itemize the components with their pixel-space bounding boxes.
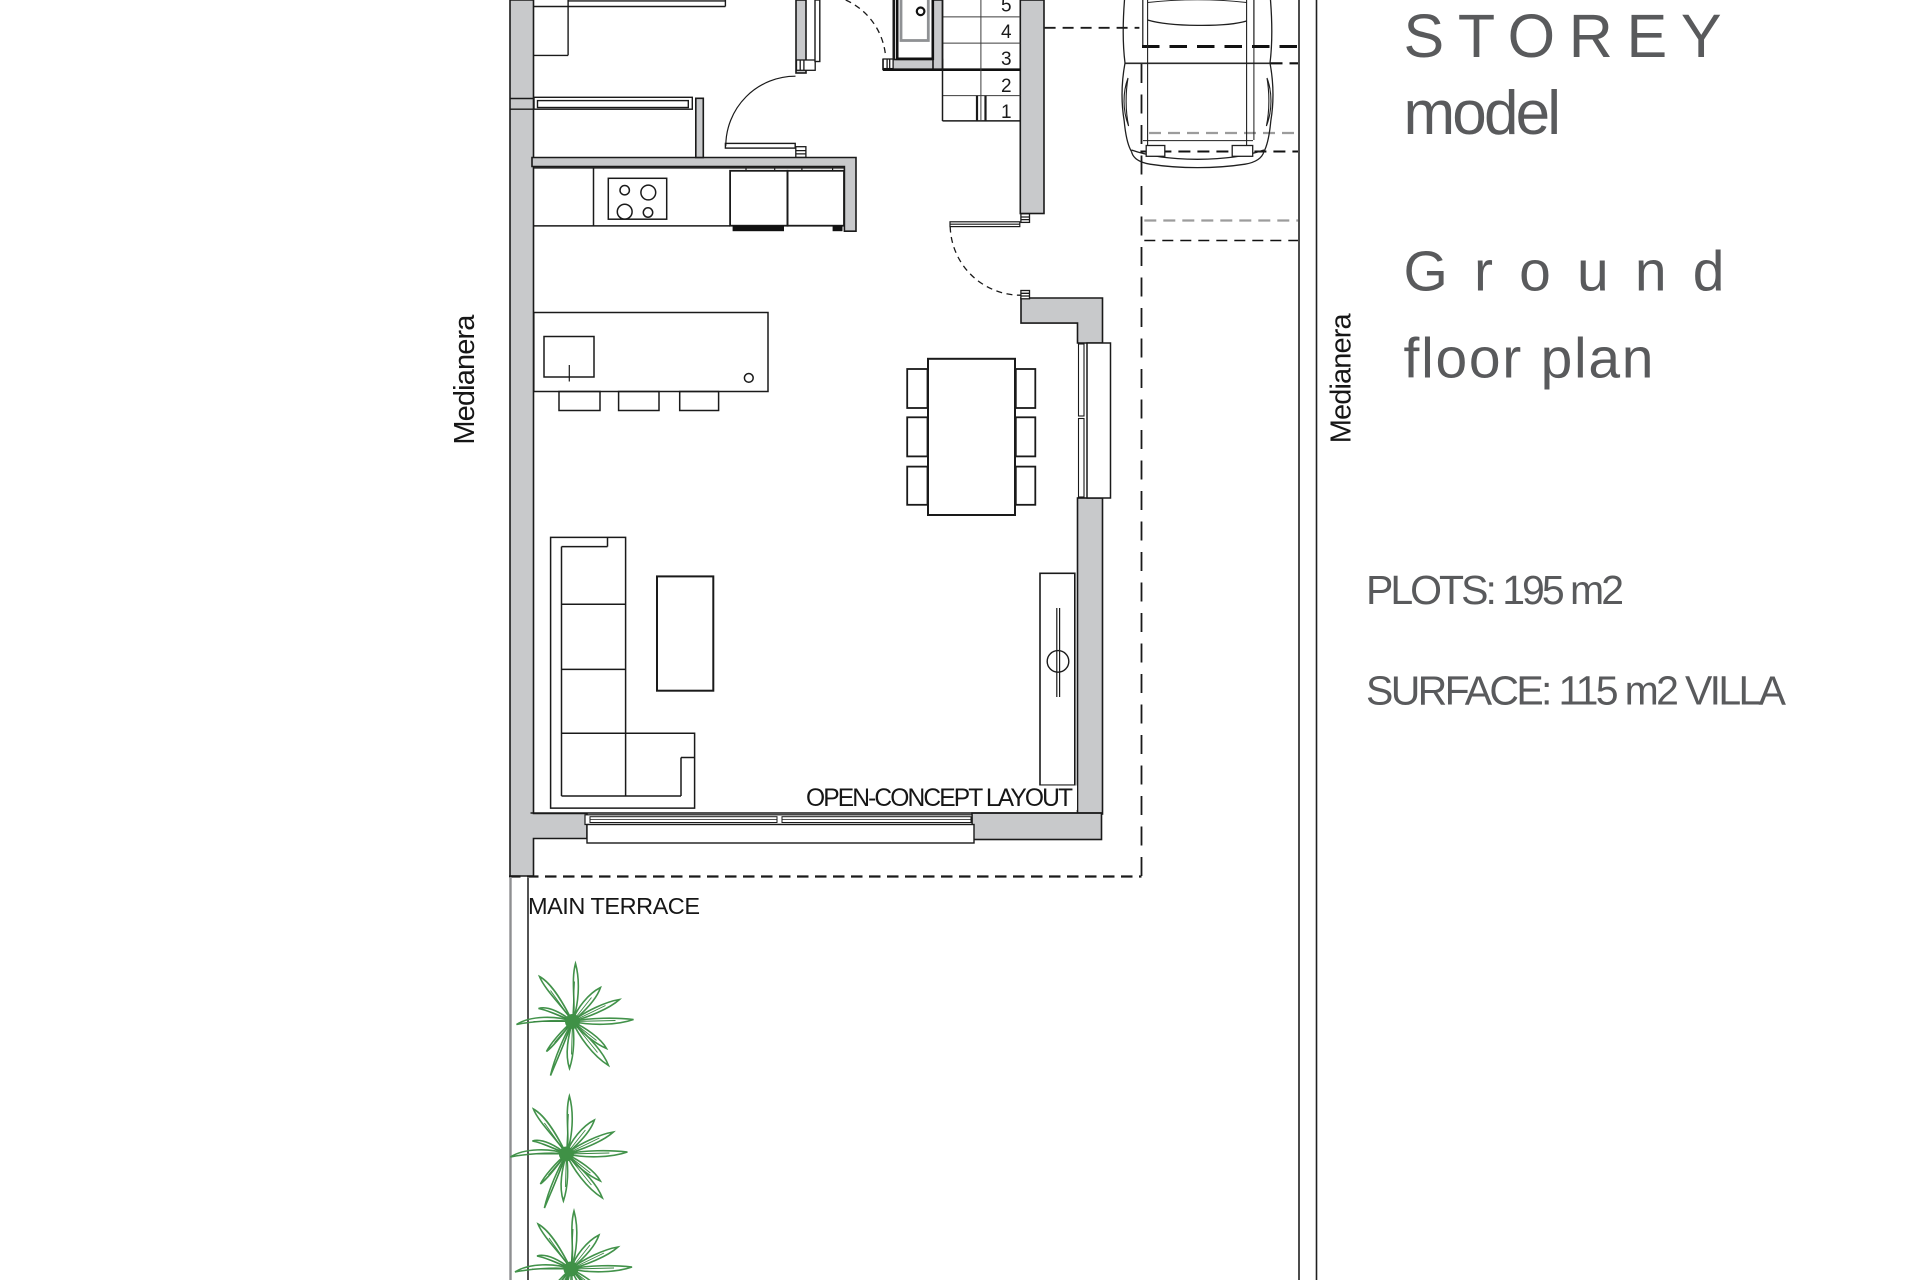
svg-text:floor plan: floor plan — [1404, 327, 1654, 391]
svg-text:SURFACE: 115 m2 VILLA: SURFACE: 115 m2 VILLA — [1366, 668, 1787, 714]
svg-text:MAIN TERRACE: MAIN TERRACE — [528, 893, 700, 919]
svg-text:PLOTS: 195 m2: PLOTS: 195 m2 — [1366, 567, 1624, 613]
svg-text:Medianera: Medianera — [449, 314, 481, 445]
svg-text:3: 3 — [1001, 49, 1012, 70]
svg-text:Medianera: Medianera — [1326, 312, 1358, 443]
svg-text:2: 2 — [1001, 76, 1012, 97]
svg-text:OPEN-CONCEPT LAYOUT: OPEN-CONCEPT LAYOUT — [806, 785, 1073, 812]
svg-text:model: model — [1404, 79, 1562, 148]
svg-text:4: 4 — [1001, 22, 1012, 43]
svg-text:1: 1 — [1001, 102, 1012, 123]
svg-text:5: 5 — [1001, 0, 1012, 17]
